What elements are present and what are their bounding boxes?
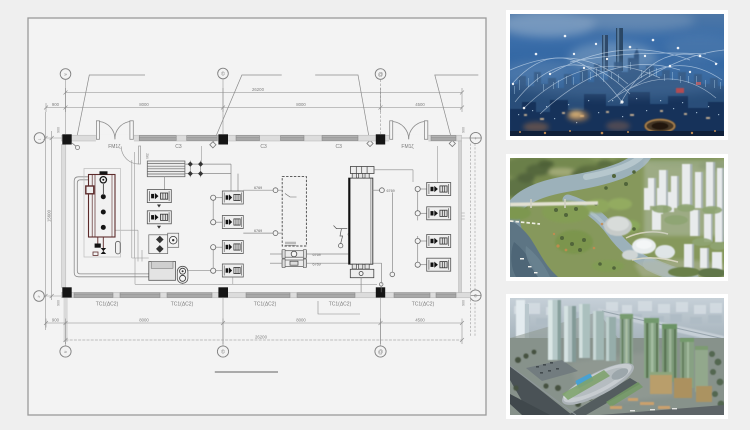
svg-text:4500: 4500 [415, 102, 425, 107]
svg-text:900: 900 [57, 127, 61, 133]
svg-text:15600: 15600 [47, 209, 52, 222]
svg-text:C3: C3 [175, 144, 182, 150]
svg-text:M2: M2 [145, 152, 150, 158]
svg-text:»: » [64, 72, 67, 78]
svg-text:»: » [64, 350, 67, 356]
svg-text:6769: 6769 [387, 189, 395, 193]
svg-text:C3: C3 [335, 144, 342, 150]
svg-text:6769: 6769 [313, 253, 321, 257]
svg-text:4500: 4500 [415, 318, 425, 323]
svg-text:TC1(ΔC2): TC1(ΔC2) [412, 302, 435, 308]
svg-text:900: 900 [462, 300, 466, 306]
svg-text:900: 900 [462, 127, 466, 133]
svg-text:FM1ζ: FM1ζ [108, 144, 121, 150]
svg-text:8000: 8000 [296, 102, 306, 107]
svg-text:+: + [474, 136, 477, 141]
svg-text:26200: 26200 [255, 335, 268, 340]
svg-text:6769: 6769 [254, 186, 262, 190]
svg-text:C3: C3 [260, 144, 267, 150]
svg-text:8000: 8000 [139, 102, 149, 107]
svg-text:TC1(ΔC2): TC1(ΔC2) [254, 302, 277, 308]
svg-text:©: © [221, 349, 225, 356]
svg-text:FM1ζ: FM1ζ [401, 144, 414, 150]
svg-text:900: 900 [52, 102, 60, 107]
svg-text:26200: 26200 [252, 87, 265, 92]
svg-text:TC1(ΔC2): TC1(ΔC2) [171, 302, 194, 308]
svg-text:→: → [37, 136, 42, 141]
svg-text:8000: 8000 [139, 318, 149, 323]
svg-text:900: 900 [52, 318, 60, 323]
svg-text:@: @ [378, 72, 383, 78]
svg-text:TC1(ΔC2): TC1(ΔC2) [329, 302, 352, 308]
svg-text:900: 900 [57, 300, 61, 306]
svg-text:8000: 8000 [296, 318, 306, 323]
svg-text:6769: 6769 [254, 229, 262, 233]
svg-text:@: @ [378, 350, 383, 356]
svg-text:©: © [221, 71, 225, 78]
svg-text:TC1(ΔC2): TC1(ΔC2) [96, 302, 119, 308]
